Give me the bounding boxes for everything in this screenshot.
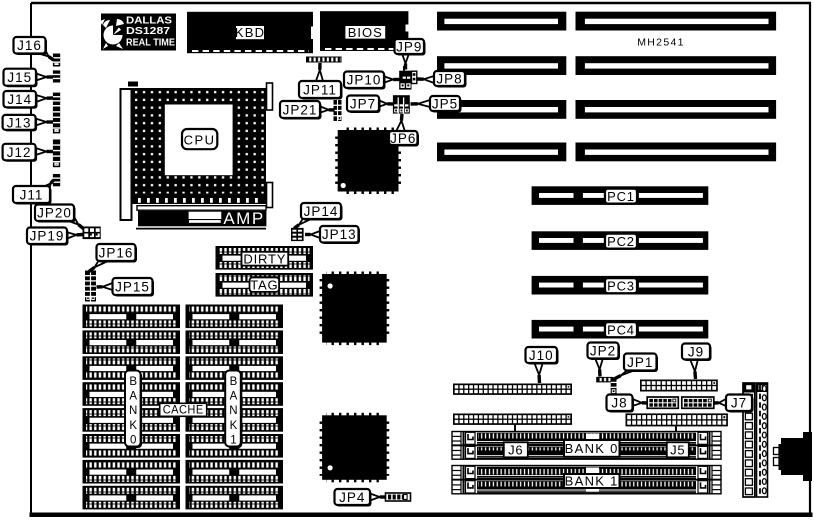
svg-text:0: 0 xyxy=(130,434,136,446)
svg-text:J6: J6 xyxy=(508,442,523,457)
svg-text:A: A xyxy=(230,391,238,403)
svg-text:B: B xyxy=(230,376,238,388)
svg-text:JP5: JP5 xyxy=(432,96,458,111)
svg-text:K: K xyxy=(230,420,238,432)
svg-text:JP1: JP1 xyxy=(627,355,653,370)
svg-text:PC4: PC4 xyxy=(607,322,635,337)
svg-text:JP19: JP19 xyxy=(30,229,65,244)
svg-text:J5: J5 xyxy=(670,442,685,457)
svg-text:REAL TIME: REAL TIME xyxy=(126,37,175,49)
svg-text:J10: J10 xyxy=(529,348,554,363)
svg-text:1: 1 xyxy=(230,434,236,446)
svg-text:K: K xyxy=(129,420,137,432)
svg-text:J7: J7 xyxy=(731,396,747,411)
svg-text:JP4: JP4 xyxy=(339,490,365,505)
svg-text:AMP: AMP xyxy=(223,209,264,228)
svg-text:DS1287: DS1287 xyxy=(126,25,170,37)
svg-text:JP16: JP16 xyxy=(99,245,134,260)
svg-text:BIOS: BIOS xyxy=(348,25,383,40)
svg-text:N: N xyxy=(129,405,137,417)
svg-text:PC1: PC1 xyxy=(607,189,635,204)
svg-text:J16: J16 xyxy=(17,38,42,53)
svg-text:CPU: CPU xyxy=(184,133,216,148)
svg-text:JP21: JP21 xyxy=(283,102,318,117)
svg-text:JP8: JP8 xyxy=(436,71,462,86)
svg-text:J13: J13 xyxy=(7,115,32,130)
svg-text:MH2541: MH2541 xyxy=(637,37,685,49)
svg-text:JP14: JP14 xyxy=(304,204,339,219)
svg-text:A: A xyxy=(129,391,137,403)
svg-text:JP9: JP9 xyxy=(396,39,422,54)
svg-text:JP6: JP6 xyxy=(390,131,416,146)
svg-text:BANK 1: BANK 1 xyxy=(565,473,619,488)
svg-text:JP10: JP10 xyxy=(347,73,382,88)
svg-text:J14: J14 xyxy=(7,92,32,107)
svg-text:N: N xyxy=(229,405,237,417)
svg-text:JP11: JP11 xyxy=(303,82,337,97)
svg-text:J11: J11 xyxy=(20,187,44,202)
svg-text:J8: J8 xyxy=(611,396,627,411)
svg-text:PC3: PC3 xyxy=(607,278,635,293)
svg-text:DIRTY: DIRTY xyxy=(243,251,286,266)
svg-text:J15: J15 xyxy=(7,70,32,85)
svg-text:PC2: PC2 xyxy=(607,234,635,249)
svg-text:JP7: JP7 xyxy=(350,96,376,111)
svg-text:TAG: TAG xyxy=(250,278,278,293)
svg-text:KBD: KBD xyxy=(235,25,265,40)
svg-text:JP2: JP2 xyxy=(590,343,616,358)
svg-text:J12: J12 xyxy=(7,145,32,160)
svg-text:JP20: JP20 xyxy=(37,206,72,221)
svg-text:BANK 0: BANK 0 xyxy=(565,441,619,456)
svg-text:CACHE: CACHE xyxy=(163,403,204,417)
svg-text:B: B xyxy=(129,376,137,388)
svg-text:JP13: JP13 xyxy=(322,227,357,242)
svg-text:JP15: JP15 xyxy=(115,279,150,294)
svg-text:J9: J9 xyxy=(688,344,704,359)
